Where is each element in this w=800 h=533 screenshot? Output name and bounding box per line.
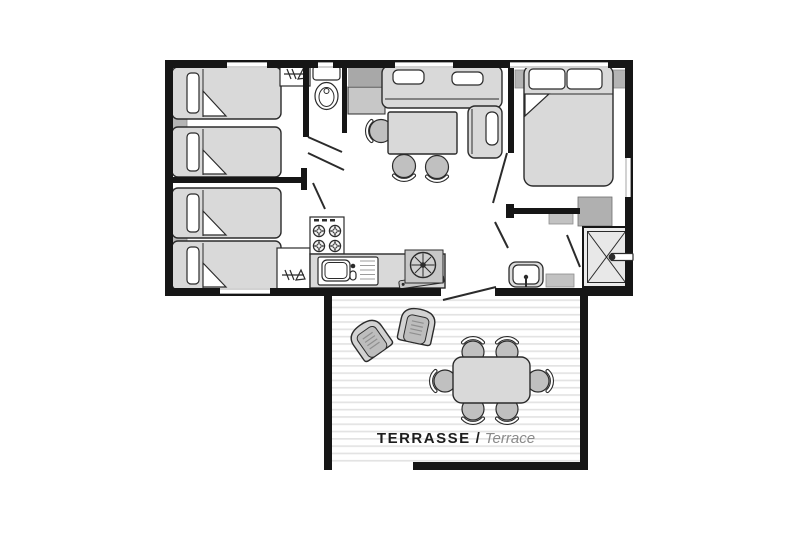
dining-table <box>388 112 457 154</box>
window <box>220 288 270 296</box>
dining-chair <box>393 155 416 180</box>
terrace-label-primary: TERRASSE <box>377 430 471 448</box>
single-bed <box>172 188 281 238</box>
double-bedroom <box>515 65 629 226</box>
shower-head <box>609 254 633 261</box>
round-appliance <box>399 250 445 289</box>
cabinet <box>348 66 383 86</box>
outdoor-chair <box>431 370 456 392</box>
dining-chair <box>426 156 449 181</box>
kitchen-sink <box>318 257 378 285</box>
stove <box>310 217 344 254</box>
floor-plan: TERRASSE / Terrace <box>0 0 800 533</box>
bedroom-door <box>313 183 325 209</box>
terrace-label-separator: / <box>476 430 480 448</box>
shower-room-door <box>567 235 580 267</box>
terrace-label-secondary: Terrace <box>485 430 535 448</box>
bathroom-door <box>495 222 508 248</box>
toilet <box>313 66 340 110</box>
tv-cabinet <box>348 87 385 114</box>
living-room <box>348 66 502 181</box>
pillow <box>567 69 602 89</box>
terrace-label: TERRASSE / Terrace <box>332 429 580 449</box>
double-bed <box>524 65 613 186</box>
pillow <box>529 69 565 89</box>
window <box>227 60 267 68</box>
outdoor-chair <box>527 370 552 392</box>
kitchen <box>310 217 445 289</box>
window <box>625 158 633 197</box>
washbasin <box>509 262 543 287</box>
window <box>318 60 333 68</box>
single-bed <box>172 241 281 290</box>
window <box>510 60 608 68</box>
corner-storage <box>578 197 612 226</box>
single-bed <box>172 127 281 177</box>
double-bedroom-door <box>493 153 507 203</box>
wardrobe <box>277 248 310 289</box>
window <box>395 60 453 68</box>
sofa-cushion <box>486 112 498 145</box>
outdoor-table <box>453 357 530 403</box>
sofa-cushion <box>452 72 483 85</box>
cabinet <box>546 274 574 287</box>
bedroom-door <box>308 153 344 170</box>
wc-door <box>308 137 342 152</box>
sofa-cushion <box>393 70 424 84</box>
floor-plan-drawing <box>0 0 800 533</box>
twin-bedrooms <box>167 62 310 290</box>
single-bed <box>172 67 281 119</box>
